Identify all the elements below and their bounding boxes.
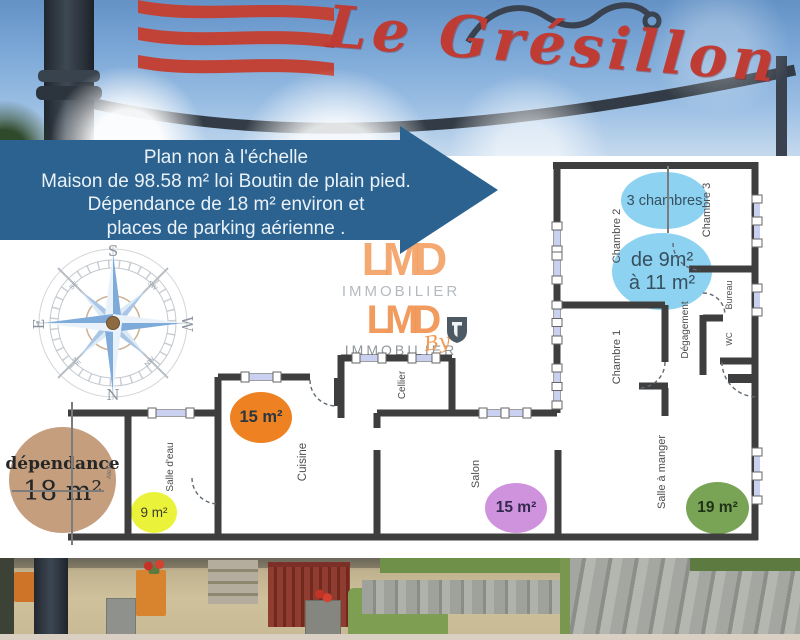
room-label-chambre-3: Chambre 3 (701, 183, 713, 237)
room-label-salle-deau: Salle d'eau (165, 442, 176, 491)
banner-text: Plan non à l'échelle Maison de 98.58 m² … (0, 146, 452, 240)
room-label-chambre-1: Chambre 1 (611, 330, 623, 384)
room-label-atelier: Atelier (106, 460, 113, 479)
room-label-bureau: Bureau (724, 280, 734, 309)
radiator (728, 374, 754, 383)
room-label-degagement: Dégagement (680, 301, 691, 358)
room-label-chambre-2: Chambre 2 (611, 209, 623, 263)
banner-line-3: Dépendance de 18 m² environ et (0, 193, 452, 217)
room-label-cellier: Cellier (397, 370, 408, 399)
room-label-salle-a-manger: Salle à manger (656, 435, 668, 509)
room-label-cuisine: Cuisine (297, 443, 309, 481)
real-estate-plan-image: Le Grésillon Plan non à l'échelle Maison… (0, 0, 800, 640)
room-label-salon: Salon (470, 460, 482, 488)
banner-line-1: Plan non à l'échelle (0, 146, 452, 170)
room-label-wc: WC (725, 332, 734, 346)
banner-line-4: places de parking aérienne . (0, 217, 452, 241)
floor-plan: Chambre 2 Chambre 3 Chambre 1 Dégagement… (0, 0, 800, 640)
banner-line-2: Maison de 98.58 m² loi Boutin de plain p… (0, 170, 452, 194)
